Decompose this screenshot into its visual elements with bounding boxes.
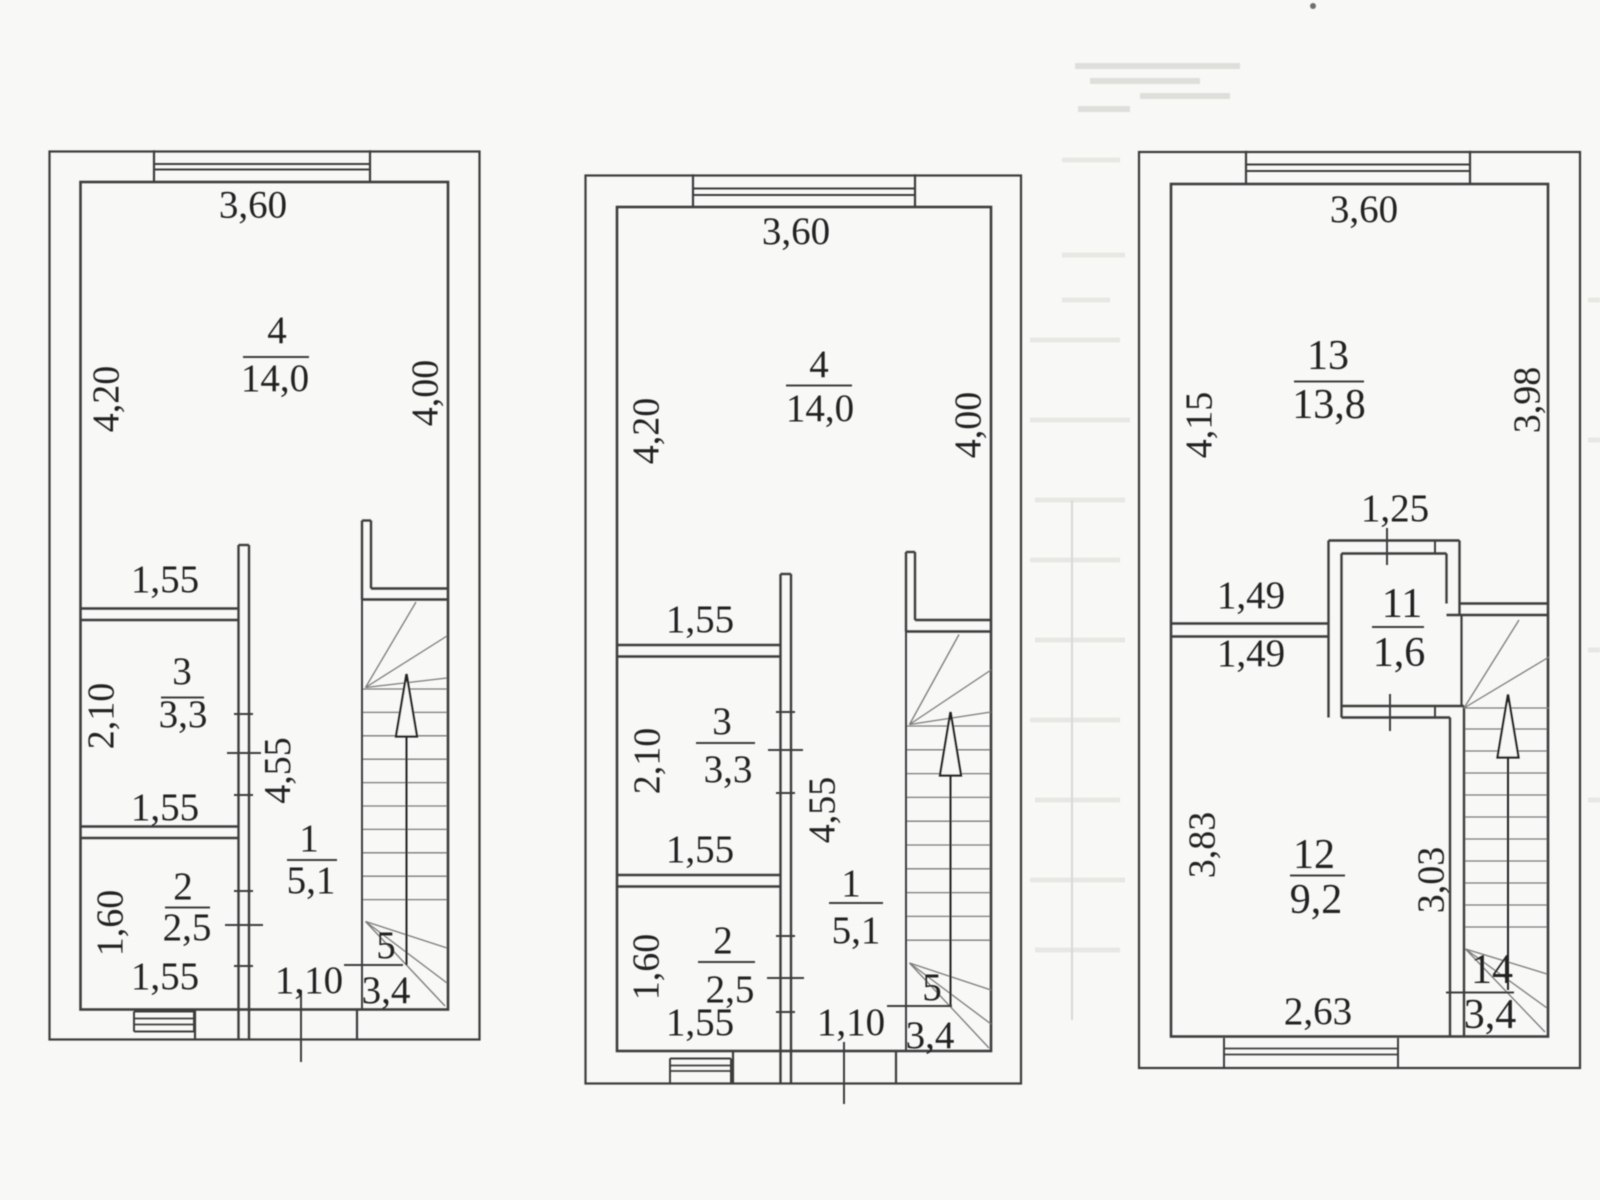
svg-text:1,60: 1,60: [625, 934, 667, 1001]
svg-text:1,55: 1,55: [131, 786, 199, 829]
svg-text:14,0: 14,0: [786, 387, 854, 430]
svg-text:1,55: 1,55: [666, 828, 734, 871]
svg-text:14,0: 14,0: [241, 357, 309, 400]
svg-text:3,3: 3,3: [704, 748, 753, 791]
svg-text:3,98: 3,98: [1506, 367, 1548, 434]
svg-text:3,3: 3,3: [159, 693, 208, 736]
svg-text:5,1: 5,1: [287, 859, 336, 902]
svg-text:2,10: 2,10: [80, 683, 122, 750]
svg-text:5: 5: [922, 966, 942, 1009]
svg-text:13,8: 13,8: [1292, 382, 1366, 428]
svg-text:4: 4: [267, 309, 287, 352]
svg-text:1,49: 1,49: [1217, 632, 1285, 675]
svg-text:11: 11: [1382, 581, 1422, 627]
svg-text:1,55: 1,55: [131, 955, 199, 998]
svg-text:3,4: 3,4: [906, 1014, 955, 1057]
svg-text:4,20: 4,20: [625, 398, 667, 465]
svg-text:4,55: 4,55: [801, 777, 843, 844]
svg-text:1,55: 1,55: [666, 598, 734, 641]
svg-text:1,10: 1,10: [817, 1001, 885, 1044]
svg-text:1,55: 1,55: [131, 558, 199, 601]
svg-text:3: 3: [172, 650, 192, 693]
svg-text:3,60: 3,60: [1330, 188, 1398, 231]
svg-text:1: 1: [299, 817, 319, 860]
svg-text:3: 3: [712, 700, 732, 743]
svg-text:5,1: 5,1: [832, 909, 881, 952]
svg-text:1,25: 1,25: [1361, 487, 1429, 530]
svg-text:5: 5: [376, 924, 396, 967]
svg-text:4,00: 4,00: [947, 392, 989, 459]
svg-text:2,10: 2,10: [626, 728, 668, 795]
svg-text:3,4: 3,4: [1464, 992, 1517, 1038]
svg-text:3,83: 3,83: [1181, 812, 1223, 879]
svg-text:1,49: 1,49: [1217, 574, 1285, 617]
svg-text:9,2: 9,2: [1290, 877, 1343, 923]
svg-text:2,5: 2,5: [163, 906, 212, 949]
svg-text:4,55: 4,55: [257, 737, 299, 804]
svg-text:13: 13: [1307, 333, 1349, 379]
svg-text:1,60: 1,60: [89, 890, 131, 957]
svg-text:2: 2: [173, 865, 193, 908]
svg-text:4,00: 4,00: [404, 360, 446, 427]
svg-text:4,20: 4,20: [85, 366, 127, 433]
svg-text:1: 1: [841, 862, 861, 905]
svg-text:1,55: 1,55: [666, 1001, 734, 1044]
svg-text:1,6: 1,6: [1373, 630, 1426, 676]
svg-text:12: 12: [1293, 832, 1335, 878]
svg-text:14: 14: [1471, 947, 1513, 993]
svg-text:1,10: 1,10: [275, 959, 343, 1002]
svg-text:2,63: 2,63: [1284, 990, 1352, 1033]
svg-text:3,60: 3,60: [762, 210, 830, 253]
svg-text:3,03: 3,03: [1410, 847, 1452, 914]
svg-text:4: 4: [809, 343, 829, 386]
svg-text:2: 2: [713, 919, 733, 962]
svg-text:4,15: 4,15: [1178, 392, 1220, 459]
svg-text:3,60: 3,60: [219, 184, 287, 227]
svg-text:3,4: 3,4: [362, 969, 411, 1012]
